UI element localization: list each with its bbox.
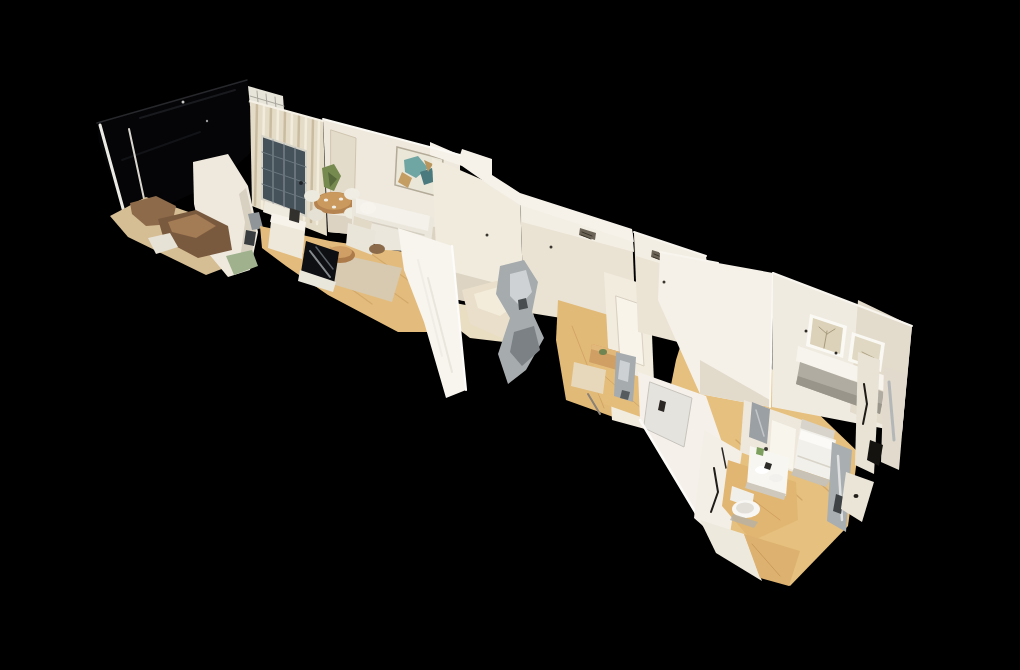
wall-speck-d <box>805 330 808 333</box>
wall-speck-e <box>835 352 838 355</box>
panel-speck-1 <box>182 101 185 104</box>
wall-speck-c <box>663 281 666 284</box>
desk-dark-bit <box>244 230 256 246</box>
place-setting-1 <box>324 198 328 201</box>
scan-artifact-silver-2-light <box>618 360 630 382</box>
place-setting-2 <box>339 197 343 200</box>
wall-speck-b <box>550 246 553 249</box>
dining-chair-1 <box>304 190 320 202</box>
sink-tap <box>764 447 768 451</box>
toilet-seat <box>736 503 754 514</box>
place-setting-3 <box>332 205 336 208</box>
r2-plant <box>599 349 607 355</box>
dining-chair-3 <box>308 209 324 221</box>
door-handle <box>299 181 303 185</box>
dollhouse-3d-view[interactable] <box>0 0 1020 670</box>
ragged-strip-3-mark <box>854 494 859 498</box>
panel-speck-2 <box>206 120 208 122</box>
side-table <box>369 244 385 254</box>
sofa-round-pillow <box>360 202 376 214</box>
viewer-stage <box>0 0 1020 670</box>
towel-roll-2 <box>769 474 783 482</box>
wall-speck-a <box>486 234 489 237</box>
